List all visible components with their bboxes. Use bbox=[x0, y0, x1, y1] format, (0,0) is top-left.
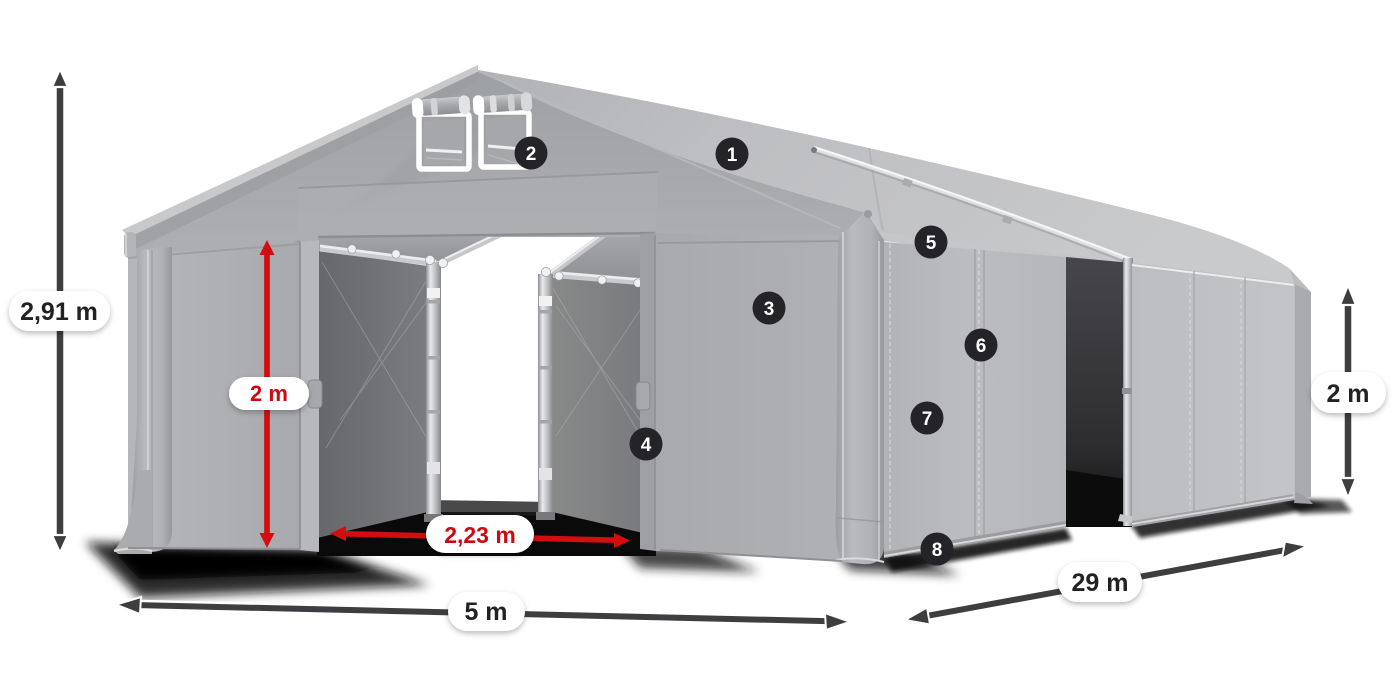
svg-text:2,91 m: 2,91 m bbox=[20, 298, 98, 326]
svg-text:2 m: 2 m bbox=[1326, 380, 1369, 408]
svg-text:3: 3 bbox=[764, 299, 775, 320]
svg-text:7: 7 bbox=[922, 409, 933, 430]
svg-text:5 m: 5 m bbox=[464, 598, 507, 626]
svg-text:2 m: 2 m bbox=[250, 381, 288, 406]
svg-text:6: 6 bbox=[976, 336, 987, 357]
svg-text:2: 2 bbox=[526, 144, 537, 165]
svg-text:1: 1 bbox=[727, 145, 738, 166]
svg-text:2,23 m: 2,23 m bbox=[444, 522, 516, 548]
svg-text:4: 4 bbox=[641, 435, 652, 456]
svg-text:29 m: 29 m bbox=[1072, 569, 1129, 597]
svg-text:5: 5 bbox=[926, 233, 937, 254]
svg-text:8: 8 bbox=[932, 540, 943, 561]
